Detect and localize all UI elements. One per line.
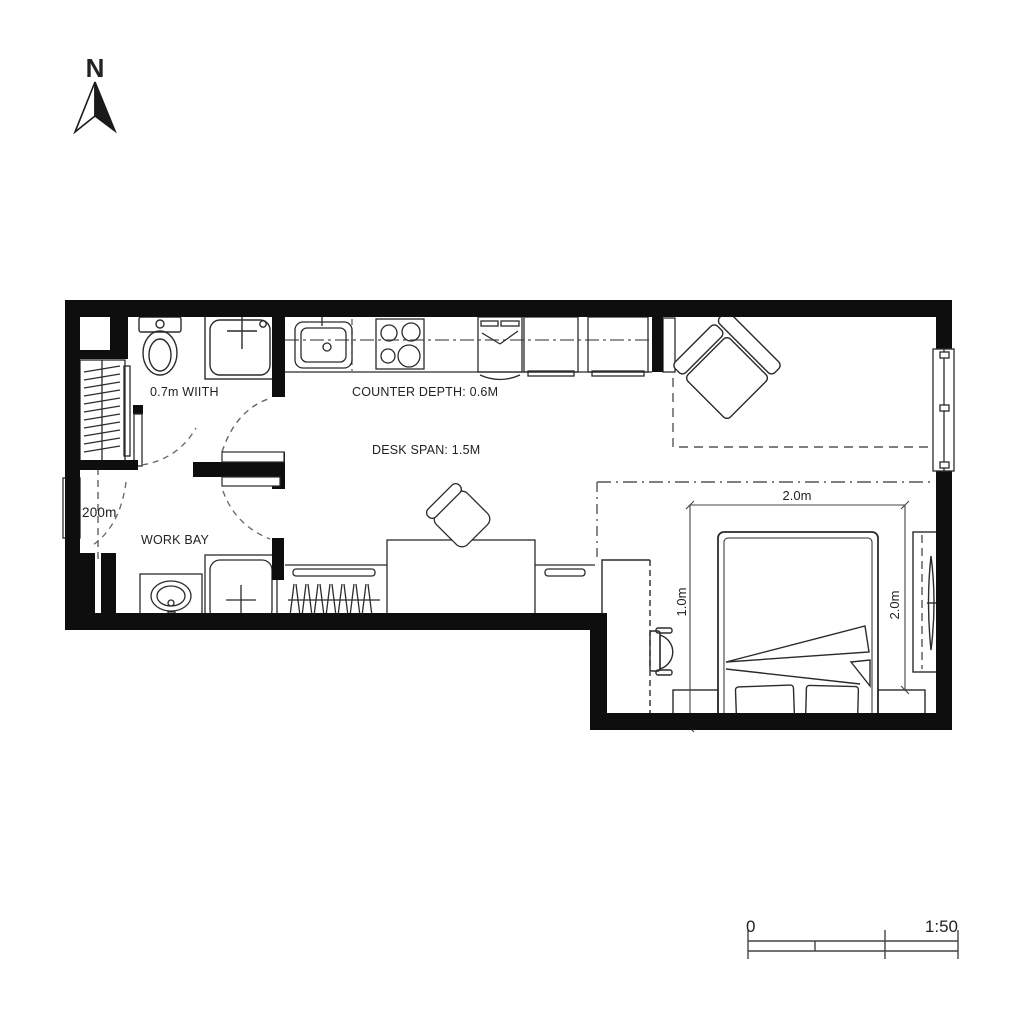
wall-bottom-right	[590, 713, 952, 730]
dishwasher-door-swing	[480, 375, 520, 380]
wall-right-lower	[936, 468, 952, 730]
wall-closet-bottom	[80, 460, 138, 470]
bedroom-chair	[650, 628, 673, 675]
radiator-hatch-unit	[288, 584, 380, 616]
bed	[718, 532, 878, 728]
dim-bed-width: 2.0m	[783, 488, 812, 503]
label-hall-width: 200m	[82, 505, 117, 520]
scale-zero: 0	[746, 917, 755, 936]
scale-ratio: 1:50	[925, 917, 958, 936]
wall-bottom-left	[65, 613, 607, 630]
wall-pocket-door	[193, 462, 285, 477]
north-arrow-left-half	[75, 82, 95, 132]
dishwasher	[478, 317, 522, 380]
work-bay-group	[140, 482, 595, 628]
north-letter: N	[86, 53, 105, 83]
wall-kitchen-end	[652, 300, 663, 372]
floor-plan-canvas: N	[0, 0, 1024, 1024]
pocket-frame-top	[222, 452, 284, 462]
hall-door-leaf	[134, 414, 142, 466]
label-bathroom-width: 0.7m WIITH	[150, 385, 219, 399]
door-arc-closet	[142, 428, 196, 465]
north-arrow: N	[75, 53, 115, 132]
scale-bar: 0 1:50	[746, 917, 958, 959]
label-counter-depth: COUNTER DEPTH: 0.6M	[352, 385, 498, 399]
label-desk-span: DESK SPAN: 1.5M	[372, 443, 480, 457]
bedroom-window	[933, 349, 954, 471]
door-arc-bathroom	[222, 398, 271, 452]
dishwasher-door-marks	[482, 331, 518, 344]
bed-blanket-fold	[726, 626, 870, 686]
counter-shelf-left	[293, 569, 375, 576]
label-work-bay: WORK BAY	[141, 533, 210, 547]
base-cabinet-1	[524, 317, 578, 372]
door-swing-arcs-hall	[90, 428, 196, 547]
wall-right-upper	[936, 300, 952, 352]
wall-niche-left	[78, 553, 95, 615]
pocket-frame-bottom	[222, 477, 280, 486]
north-arrow-right-half	[95, 82, 115, 131]
wall-bathroom-partition	[272, 300, 285, 397]
dim-bed-length: 2.0m	[887, 591, 902, 620]
wall-top	[65, 300, 952, 317]
toilet	[139, 317, 181, 375]
wardrobe	[913, 532, 940, 672]
dim-desk-depth: 1.0m	[674, 588, 689, 617]
zone-boundaries	[98, 319, 934, 562]
armchair	[672, 310, 782, 420]
base-cabinet-2	[588, 317, 648, 372]
tall-cabinet	[663, 318, 675, 372]
wall-workbay-stub	[272, 538, 284, 580]
living-group	[672, 310, 782, 420]
work-desk	[387, 540, 535, 622]
wall-left	[65, 300, 80, 630]
stove	[376, 319, 424, 369]
floor-plan-page: N	[0, 0, 1024, 1024]
bedroom-desk	[602, 560, 650, 728]
hall-door-hinge	[133, 405, 143, 414]
counter-shelf-right	[545, 569, 585, 576]
bathroom-top-group	[139, 315, 275, 452]
door-arc-workbay	[223, 491, 270, 539]
shower-top	[205, 315, 275, 379]
walls	[65, 300, 952, 730]
wall-niche-right	[101, 553, 116, 615]
wall-duct-bottom	[80, 350, 128, 359]
wall-step	[590, 613, 607, 730]
